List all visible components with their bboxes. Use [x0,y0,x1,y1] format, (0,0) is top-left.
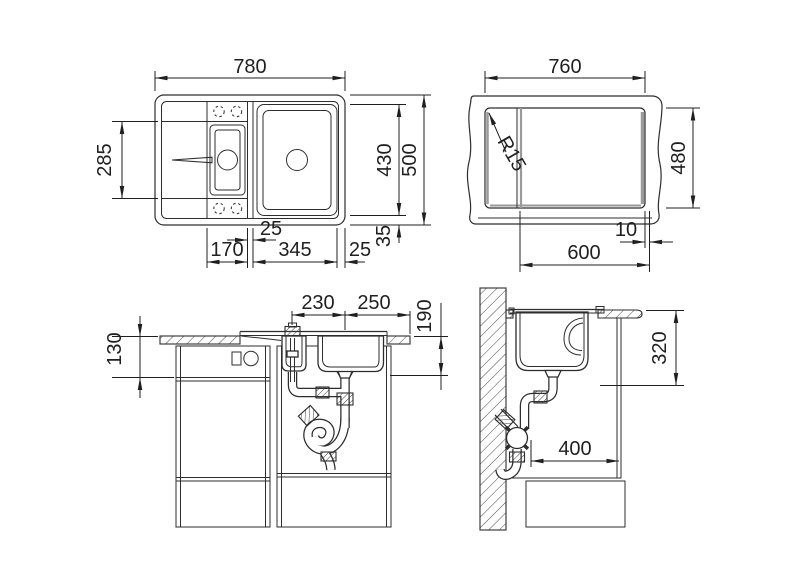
pipe-collar [337,393,353,405]
wall-section [480,288,506,530]
tap-hole-bottom-left [214,203,224,213]
flange-lug [525,427,528,430]
bowl-cross-section [516,312,588,371]
side-section-view: 320 400 [480,288,684,530]
dim-label-bowl-depth: 190 [414,299,436,332]
drainboard-slope [241,336,281,341]
cabinet-side-panel [617,318,621,478]
dim-label-apron: 130 [104,332,126,365]
sink-installation-drawing: 780 285 430 500 35 25 170 345 25 R15 760… [0,0,802,563]
dim-label-bowl-zone: 285 [94,143,116,176]
tap-hole-top-left [214,106,224,116]
dim-label-rim-gap: 35 [373,225,395,247]
dim-label-edge-offset: 10 [615,219,637,241]
control-knob-symbol [244,351,258,365]
top-view-sink: 780 285 430 500 35 25 170 345 25 [94,56,431,268]
plinth-box [526,481,625,527]
main-strainer [338,372,352,379]
pipe-collar [316,387,329,398]
main-bowl-drain [287,150,308,171]
front-section-view: 230 250 190 130 [104,292,448,527]
main-bowl-section [318,336,384,377]
flange-lug [525,446,528,449]
strainer-section [545,371,561,378]
small-bowl-drain [218,150,238,170]
dim-label-main-bowl-center: 250 [357,292,390,314]
dim-label-main-bowl: 345 [278,239,311,261]
drain-actuator-block [285,327,300,337]
drainboard-groove [172,157,212,163]
dim-label-cabinet-width: 600 [567,242,600,264]
dim-label-total-width: 780 [233,56,266,78]
dim-label-bowls-length: 430 [374,143,396,176]
pipe-collar [510,452,525,462]
dim-label-drainboard: 170 [210,239,243,261]
dim-label-drain-height: 320 [649,331,671,364]
tap-hole-bottom-right [231,203,241,213]
trap-flange [507,428,528,449]
tap-hole-top-right [231,106,241,116]
sink-outer-edge [155,95,345,225]
main-bowl-rim [257,105,337,216]
small-bowl-inner [215,130,240,190]
dim-label-trap-clearance: 400 [558,438,591,460]
counter-hatch-right [387,336,410,344]
dim-label-corner-radius: R15 [493,133,530,176]
pipe-collar [534,391,547,403]
counter-nose-right [598,310,642,318]
dim-label-cutout-depth: 480 [668,141,690,174]
dim-label-bowl-divider: 25 [260,218,282,240]
flange-lug [506,446,509,449]
main-bowl-inner [263,111,331,210]
sink-inner-rim [162,102,339,219]
dim-label-total-depth: 500 [399,143,421,176]
left-cabinet [176,346,270,527]
dim-label-cutout-width: 760 [548,56,581,78]
control-square-symbol [232,352,241,365]
dim-label-small-bowl-center: 230 [301,292,334,314]
top-view-cutout: R15 760 480 10 600 [467,56,700,272]
technical-drawing-page: 780 285 430 500 35 25 170 345 25 R15 760… [0,0,802,563]
stem-collar [287,351,298,357]
dim-label-right-edge: 25 [349,239,371,261]
counter-hatch-left [160,336,240,344]
pipe-collar [321,452,336,461]
